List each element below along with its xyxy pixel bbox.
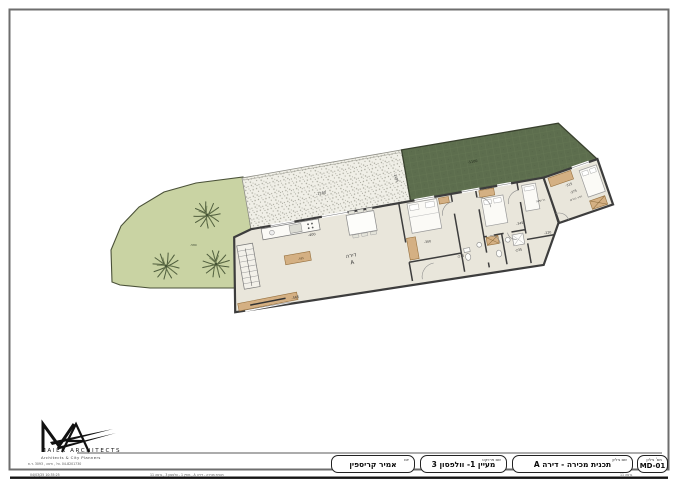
architect-contact: 04-8201730 .טל , חיפה , 3093 .ד.ת bbox=[28, 462, 81, 466]
dim-label-garden: -580 bbox=[190, 243, 197, 247]
client-box: יזם אמיר קריספין bbox=[331, 455, 415, 473]
footer-center: תכנית מכירה - דירה A , מעיין 1 - וולפסון… bbox=[150, 473, 224, 477]
footer-right: גרסה 11 bbox=[620, 473, 632, 477]
drawing-sheet: -580 -1180 -2285 -1100 bbox=[0, 0, 678, 480]
garden: -580 bbox=[111, 177, 251, 288]
sheet-number-label: מס' גיליון bbox=[646, 457, 662, 462]
footer-left: 04/03/25 10:35:25 bbox=[30, 473, 60, 477]
sheet-name-box: שם גיליון תכנית מכירה - דירה A bbox=[512, 455, 633, 473]
sheet-number-value: MD-01 bbox=[638, 462, 667, 470]
sheet-name-value: תכנית מכירה - דירה A bbox=[513, 460, 632, 469]
architect-tagline: Architects & City Planners bbox=[41, 455, 101, 460]
sheet-bottom-edge bbox=[10, 477, 668, 479]
client-value: אמיר קריספין bbox=[332, 460, 414, 469]
floor-plan-canvas: -580 -1180 -2285 -1100 bbox=[0, 0, 678, 480]
sheet-number-box: מס' גיליון MD-01 bbox=[637, 455, 668, 473]
project-name-box: שם פרויקט מעיין 1- וולפסון 3 bbox=[420, 455, 507, 473]
project-name-value: מעיין 1- וולפסון 3 bbox=[421, 460, 506, 469]
architect-name: MAIER ARCHITECTS bbox=[41, 448, 121, 454]
floor-plan: -1180 -2285 -1100 bbox=[212, 115, 621, 319]
